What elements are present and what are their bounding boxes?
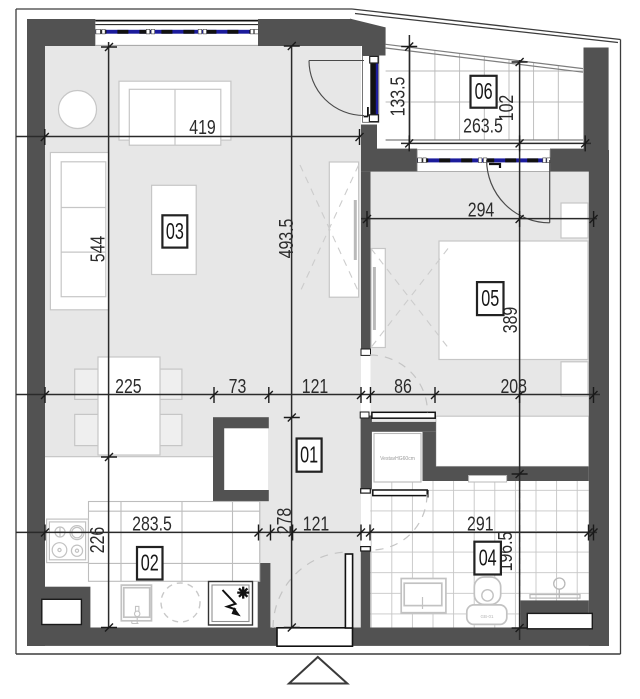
svg-text:02: 02	[141, 550, 159, 576]
svg-text:294: 294	[468, 199, 495, 222]
svg-text:01: 01	[300, 442, 318, 468]
svg-text:133.5: 133.5	[387, 77, 410, 117]
svg-text:225: 225	[115, 375, 142, 398]
svg-text:102: 102	[495, 95, 518, 122]
svg-text:226: 226	[86, 527, 109, 554]
svg-text:291: 291	[467, 513, 494, 536]
svg-text:04: 04	[479, 545, 497, 571]
svg-text:03: 03	[166, 218, 184, 244]
svg-text:05: 05	[481, 285, 499, 311]
svg-text:121: 121	[302, 375, 329, 398]
svg-text:419: 419	[189, 116, 216, 139]
svg-text:544: 544	[87, 236, 110, 263]
svg-text:VestavHG60cm: VestavHG60cm	[380, 456, 415, 462]
svg-text:208: 208	[500, 375, 527, 398]
svg-text:493.5: 493.5	[275, 219, 298, 259]
svg-text:06: 06	[475, 78, 493, 104]
svg-text:86: 86	[394, 375, 412, 398]
svg-text:121: 121	[303, 513, 330, 536]
svg-text:283.5: 283.5	[132, 513, 172, 536]
svg-text:73: 73	[229, 375, 247, 398]
svg-text:278: 278	[273, 508, 296, 535]
svg-text:GB-01: GB-01	[480, 614, 494, 619]
